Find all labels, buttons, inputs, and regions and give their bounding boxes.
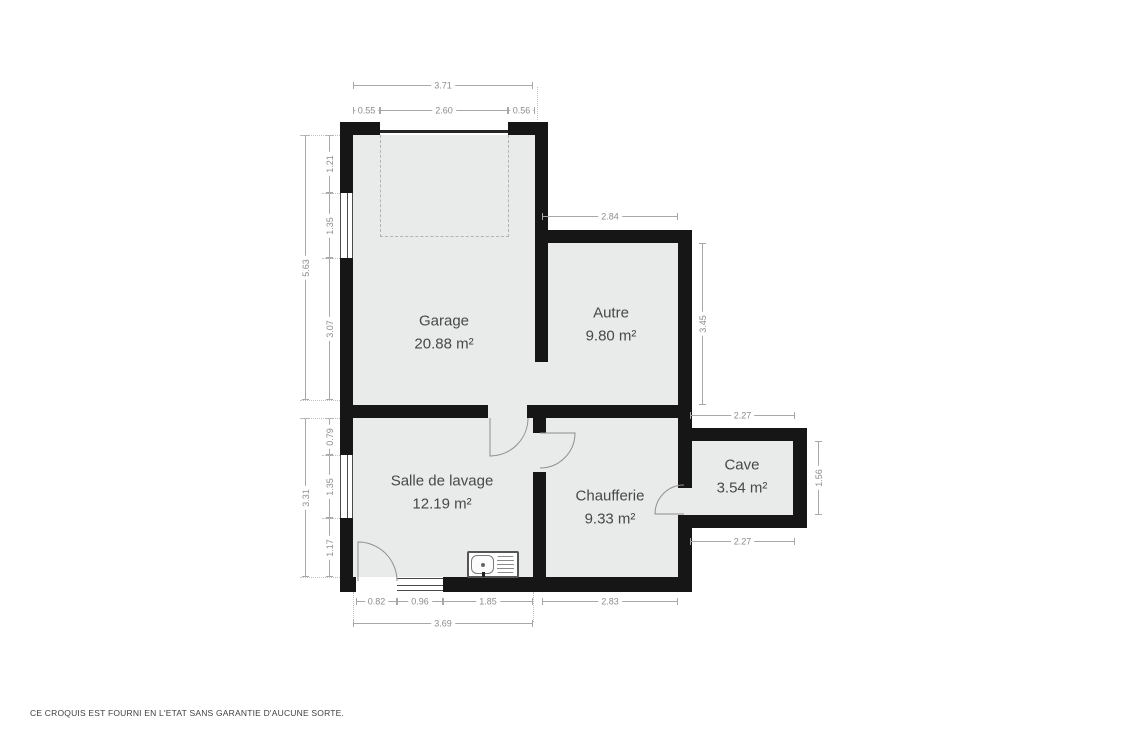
wall-salle-chaufferie-stub xyxy=(533,405,546,433)
room-name: Chaufferie xyxy=(576,486,645,509)
dim-left-upper-c: 3.07 xyxy=(329,258,330,400)
disclaimer-text: CE CROQUIS EST FOURNI EN L'ETAT SANS GAR… xyxy=(30,708,344,718)
dim-bottom-c: 1.85 xyxy=(443,601,533,602)
room-area: 20.88 m² xyxy=(414,333,473,356)
window-bottom xyxy=(397,578,443,591)
extension-line xyxy=(300,577,340,578)
dim-left-upper-total: 5.63 xyxy=(305,135,306,400)
opening-garage-salle xyxy=(488,405,527,418)
extension-line xyxy=(300,135,340,136)
room-label-autre: Autre 9.80 m² xyxy=(586,303,637,348)
garage-door-clearance xyxy=(380,135,509,237)
room-label-chaufferie: Chaufferie 9.33 m² xyxy=(576,486,645,531)
wall-divider-right xyxy=(527,405,692,418)
extension-line xyxy=(322,518,340,519)
room-name: Autre xyxy=(586,303,637,326)
wall-cave-bottom xyxy=(690,515,807,528)
dim-left-lower-b: 1.35 xyxy=(329,455,330,518)
floor-plan: Garage 20.88 m² Autre 9.80 m² Salle de l… xyxy=(0,0,1125,750)
wall-bottom-salle xyxy=(443,577,546,592)
dim-top-total: 3.71 xyxy=(353,85,533,86)
wall-left-upper-a xyxy=(340,122,353,193)
dim-cave-right: 1.56 xyxy=(818,441,819,515)
dim-left-upper-b: 1.35 xyxy=(329,193,330,258)
extension-line xyxy=(533,592,534,622)
wall-bottom-chaufferie xyxy=(546,577,692,592)
opening-chaufferie-cave xyxy=(678,488,692,515)
wall-right-upper xyxy=(678,230,692,488)
extension-line xyxy=(322,455,340,456)
room-name: Salle de lavage xyxy=(391,471,494,494)
dim-autre-right: 3.45 xyxy=(702,243,703,405)
wall-salle-chaufferie xyxy=(533,472,546,577)
room-label-garage: Garage 20.88 m² xyxy=(414,311,473,356)
dim-bottom-b: 0.96 xyxy=(397,601,443,602)
opening-salle-chaufferie xyxy=(533,433,546,472)
window-left-lower xyxy=(340,455,353,518)
extension-line xyxy=(300,400,340,401)
room-name: Garage xyxy=(414,311,473,334)
extension-line xyxy=(537,87,538,120)
opening-garage-autre xyxy=(535,362,548,405)
dim-bottom-a: 0.82 xyxy=(356,601,397,602)
room-label-salle-de-lavage: Salle de lavage 12.19 m² xyxy=(391,471,494,516)
dim-top-mid: 2.60 xyxy=(380,110,508,111)
room-label-cave: Cave 3.54 m² xyxy=(717,455,768,500)
dim-left-lower-c: 1.17 xyxy=(329,518,330,577)
sink-icon xyxy=(467,551,519,578)
dim-cave-top: 2.27 xyxy=(690,415,795,416)
wall-left-mid xyxy=(340,258,353,455)
wall-divider-left xyxy=(340,405,488,418)
wall-autre-top xyxy=(542,230,692,243)
dim-left-lower-total: 3.31 xyxy=(305,418,306,577)
sink-drainboard xyxy=(497,556,514,573)
extension-line xyxy=(300,418,340,419)
dim-left-lower-a: 0.79 xyxy=(329,418,330,455)
extension-line xyxy=(322,193,340,194)
sink-basin xyxy=(471,555,494,574)
dim-top-right: 0.56 xyxy=(508,110,535,111)
garage-door xyxy=(380,122,508,135)
room-area: 3.54 m² xyxy=(717,477,768,500)
wall-bottom-left-block xyxy=(340,577,356,592)
wall-garage-autre xyxy=(535,135,548,362)
room-area: 12.19 m² xyxy=(391,493,494,516)
dim-bottom-total: 3.69 xyxy=(353,623,533,624)
wall-cave-right xyxy=(793,428,807,528)
dim-cave-bottom: 2.27 xyxy=(690,541,795,542)
wall-top-right-block xyxy=(508,122,548,135)
room-area: 9.80 m² xyxy=(586,325,637,348)
room-area: 9.33 m² xyxy=(576,508,645,531)
dim-autre-top: 2.84 xyxy=(542,216,678,217)
extension-line xyxy=(353,592,354,622)
extension-line xyxy=(322,258,340,259)
dim-left-upper-a: 1.21 xyxy=(329,135,330,193)
wall-cave-top xyxy=(690,428,807,441)
window-left-upper xyxy=(340,193,353,258)
room-name: Cave xyxy=(717,455,768,478)
dim-bottom-d: 2.83 xyxy=(542,601,678,602)
dim-top-left: 0.55 xyxy=(353,110,380,111)
